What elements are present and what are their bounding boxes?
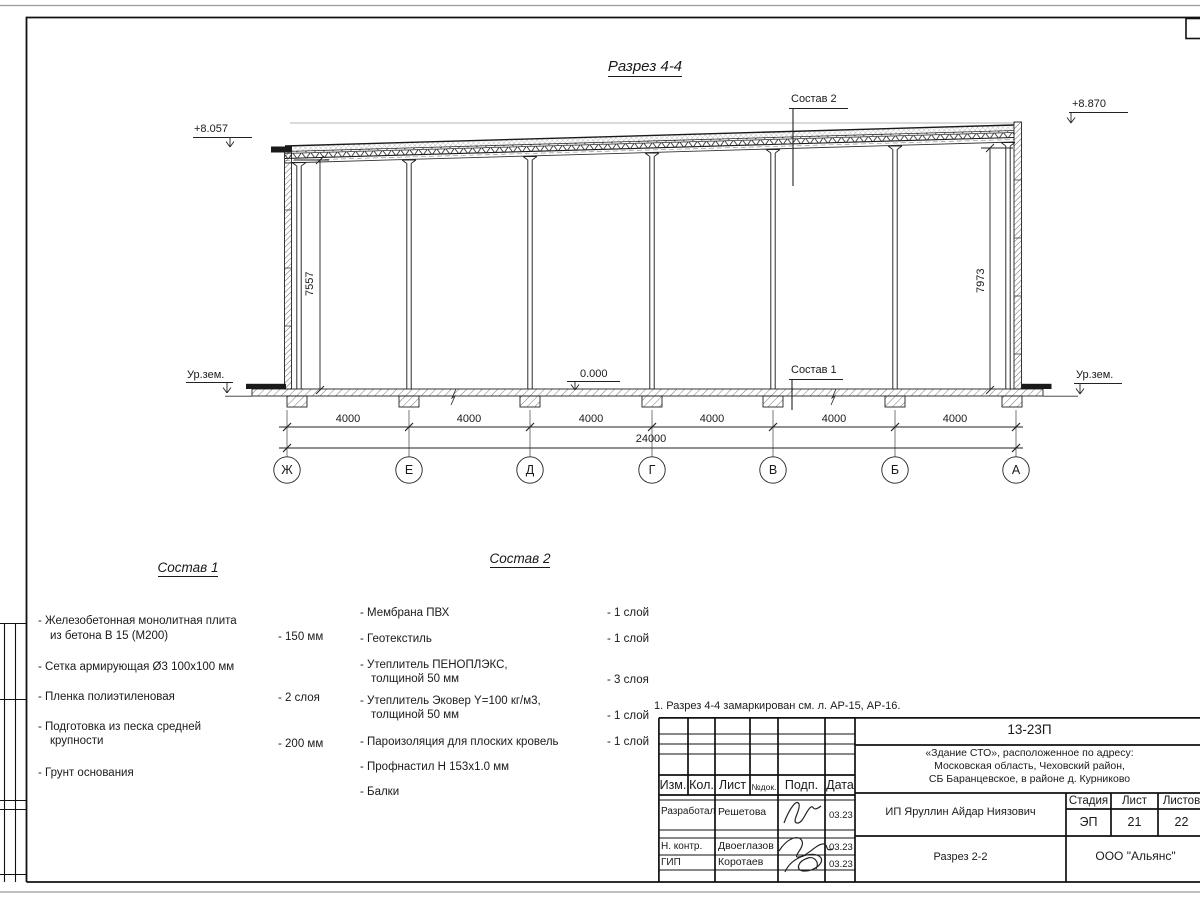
titleblock-date-1: 03.23: [829, 810, 853, 821]
titleblock-client: ИП Яруллин Айдар Ниязович: [855, 806, 1066, 818]
sostav1-item-line: - Сетка армирующая Ø3 100х100 мм: [38, 661, 234, 673]
sostav1-item-line: - Пленка полиэтиленовая: [38, 691, 175, 703]
sostav2-item-line: - Профнастил Н 153х1.0 мм: [360, 761, 509, 773]
sostav2-item-value: - 1 слой: [607, 736, 649, 748]
sostav2-item-value: - 1 слой: [607, 710, 649, 722]
sostav1-item-value: - 150 мм: [278, 631, 323, 643]
sostav1-item-line: из бетона В 15 (М200): [50, 630, 168, 642]
titleblock-col-list: Лист: [715, 778, 750, 792]
titleblock-role-2: Н. контр.: [661, 841, 702, 852]
titleblock-col-kol: Кол.: [688, 778, 715, 792]
axis-bubble-d: Д: [515, 463, 545, 477]
elevation-zero: 0.000: [580, 368, 608, 380]
sostav1-item-line: - Подготовка из песка средней: [38, 721, 201, 733]
titleblock-project-line: СБ Баранцевское, в районе д. Курниково: [855, 773, 1200, 785]
titleblock-name-1: Решетова: [718, 806, 766, 818]
titleblock-col-izm: Изм.: [658, 778, 688, 792]
sostav2-item-value: - 3 слоя: [607, 674, 649, 686]
leader-label-roof: Состав 2: [791, 93, 837, 105]
sostav1-item-value: - 2 слоя: [278, 692, 320, 704]
bay-dim: 4000: [561, 413, 621, 425]
titleblock-sheet-label: Лист: [1111, 795, 1158, 807]
titleblock-organization: ООО "Альянс": [1066, 849, 1200, 863]
titleblock-sheets-label: Листов: [1158, 795, 1200, 807]
titleblock-sheet-value: 21: [1111, 815, 1158, 829]
total-dim: 24000: [611, 433, 691, 445]
titleblock-project-line: Московская область, Чеховский район,: [855, 760, 1200, 772]
sostav2-item-line: - Геотекстиль: [360, 633, 432, 645]
sostav2-item-line: - Утеплитель ПЕНОПЛЭКС,: [360, 659, 508, 671]
titleblock-name-2: Двоеглазов: [718, 840, 774, 852]
sostav1-title: Состав 1: [38, 560, 338, 575]
bay-dim: 4000: [318, 413, 378, 425]
sostav1-item-line: - Грунт основания: [38, 767, 134, 779]
titleblock-sheet-name: Разрез 2-2: [855, 851, 1066, 863]
section-title: Разрез 4-4: [565, 58, 725, 75]
sostav2-title: Состав 2: [420, 551, 620, 566]
axis-bubble-zh: Ж: [272, 463, 302, 477]
height-dim-left: 7557: [304, 272, 316, 296]
axis-bubble-v: В: [758, 463, 788, 477]
titleblock-sheets-value: 22: [1158, 815, 1200, 829]
sostav1-item-value: - 200 мм: [278, 738, 323, 750]
sostav1-item-line: - Железобетонная монолитная плита: [38, 615, 237, 627]
axis-bubble-b: Б: [880, 463, 910, 477]
titleblock-project-line: «Здание СТО», расположенное по адресу:: [855, 747, 1200, 759]
sostav1-item-line: крупности: [50, 735, 103, 747]
signature-reshetova: [784, 803, 821, 824]
elevation-top-right: +8.870: [1072, 98, 1106, 110]
titleblock-role-3: ГИП: [661, 857, 681, 868]
titleblock-stage-value: ЭП: [1066, 815, 1111, 829]
sostav2-item-line: - Пароизоляция для плоских кровель: [360, 736, 559, 748]
titleblock-date-2: 03.23: [829, 842, 853, 853]
drawing-sheet: Разрез 4-4 +8.057 +8.870 0.000 Ур.зем. У…: [0, 0, 1200, 900]
sostav2-item-value: - 1 слой: [607, 633, 649, 645]
sostav2-item-line: - Мембрана ПВХ: [360, 607, 449, 619]
titleblock-col-ndok: №док.: [750, 782, 778, 792]
titleblock-date-3: 03.23: [829, 859, 853, 870]
titleblock-col-data: Дата: [825, 778, 855, 792]
titleblock-doc-number: 13-23П: [855, 722, 1200, 737]
sostav2-item-line: толщиной 50 мм: [371, 709, 459, 721]
bay-dim: 4000: [439, 413, 499, 425]
axis-bubble-a: А: [1001, 463, 1031, 477]
bay-dim: 4000: [682, 413, 742, 425]
axis-bubble-g: Г: [637, 463, 667, 477]
titleblock-name-3: Коротаев: [718, 856, 763, 868]
titleblock-stage-label: Стадия: [1066, 795, 1111, 807]
leader-label-floor: Состав 1: [791, 364, 837, 376]
sostav2-item-line: толщиной 50 мм: [371, 673, 459, 685]
building-section: [225, 122, 1078, 407]
titleblock-role-1: Разработал: [661, 806, 715, 817]
bay-dim: 4000: [804, 413, 864, 425]
drawing-note: 1. Разрез 4-4 замаркирован см. л. АР-15,…: [654, 700, 900, 712]
ground-level-label-left: Ур.зем.: [187, 369, 224, 381]
titleblock-col-podp: Подп.: [778, 778, 825, 792]
height-dim-right: 7973: [975, 269, 987, 293]
sostav2-item-value: - 1 слой: [607, 607, 649, 619]
sostav2-item-line: - Балки: [360, 786, 399, 798]
ground-level-label-right: Ур.зем.: [1076, 369, 1113, 381]
sostav2-item-line: - Утеплитель Эковер Y=100 кг/м3,: [360, 695, 541, 707]
axis-bubble-e: Е: [394, 463, 424, 477]
bay-dim: 4000: [925, 413, 985, 425]
signature-korotaev: [785, 854, 822, 872]
elevation-top-left: +8.057: [194, 123, 228, 135]
